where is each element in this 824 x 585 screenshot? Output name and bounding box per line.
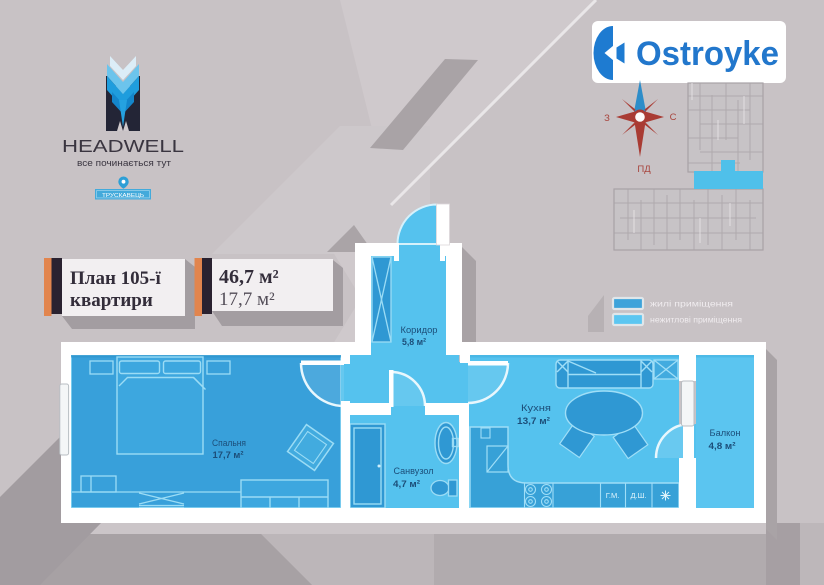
svg-text:HEADWELL: HEADWELL (62, 136, 184, 156)
svg-text:Санвузол: Санвузол (394, 466, 434, 476)
svg-text:ТРУСКАВЕЦЬ: ТРУСКАВЕЦЬ (102, 193, 145, 199)
svg-text:Спальня: Спальня (212, 438, 246, 448)
svg-text:План 105-ї: План 105-ї (70, 268, 161, 289)
svg-text:З: З (604, 113, 610, 124)
svg-text:С: С (670, 112, 677, 123)
svg-text:13,7 м²: 13,7 м² (517, 416, 550, 427)
svg-text:квартири: квартири (70, 290, 153, 311)
svg-text:Д.Ш.: Д.Ш. (630, 491, 646, 500)
svg-text:Ostroyke: Ostroyke (636, 35, 779, 73)
svg-text:Балкон: Балкон (710, 428, 741, 438)
svg-text:46,7 м²: 46,7 м² (219, 266, 279, 288)
svg-text:Коридор: Коридор (401, 325, 438, 335)
svg-text:жилі приміщення: жилі приміщення (650, 299, 733, 309)
svg-text:5,8 м²: 5,8 м² (402, 337, 426, 348)
svg-text:нежитлові приміщення: нежитлові приміщення (650, 315, 742, 325)
svg-text:Кухня: Кухня (521, 403, 551, 413)
svg-text:17,7 м²: 17,7 м² (219, 289, 275, 310)
svg-text:все починається тут: все починається тут (77, 158, 171, 168)
svg-text:Г.М.: Г.М. (606, 491, 620, 500)
svg-text:ПД: ПД (637, 164, 651, 175)
svg-text:17,7 м²: 17,7 м² (213, 450, 244, 461)
svg-text:4,7 м²: 4,7 м² (393, 479, 420, 490)
svg-text:4,8 м²: 4,8 м² (709, 441, 736, 452)
